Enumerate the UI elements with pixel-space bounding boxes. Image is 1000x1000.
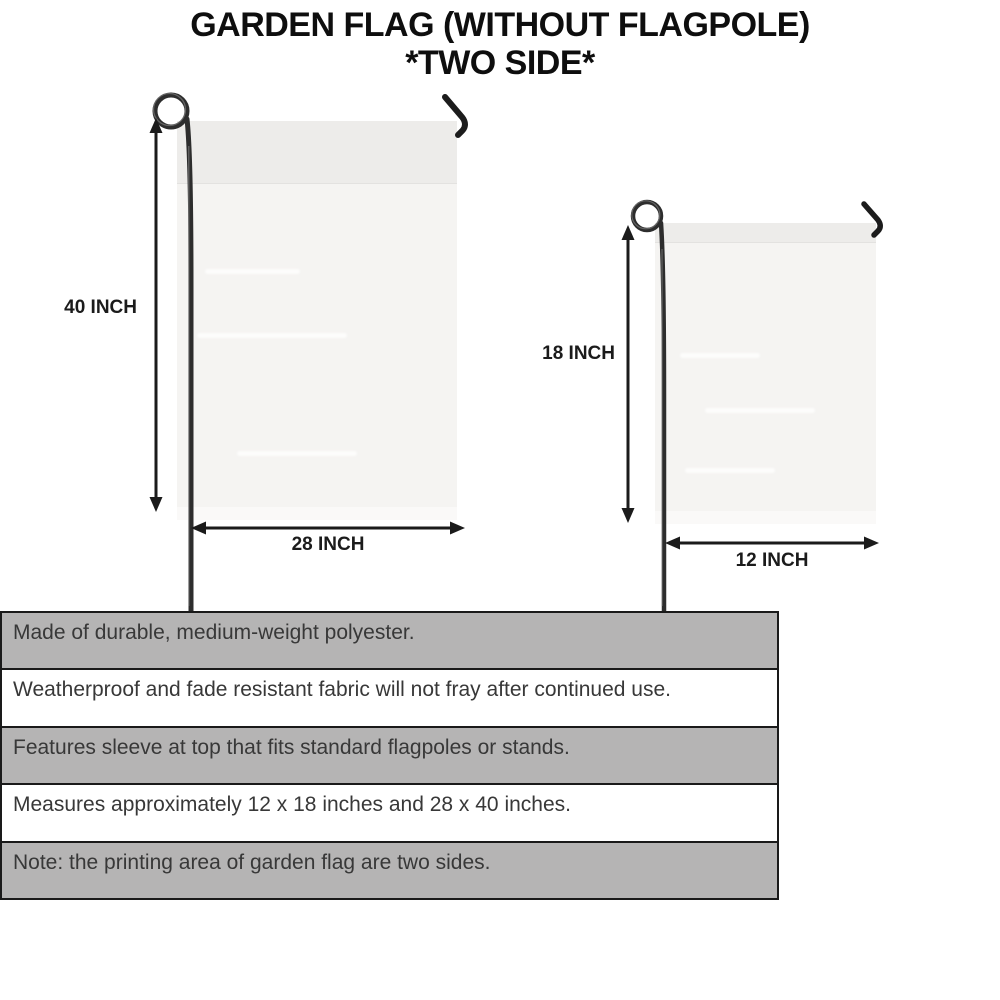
feature-text: Note: the printing area of garden flag a… xyxy=(13,851,490,874)
feature-row-sleeve: Features sleeve at top that fits standar… xyxy=(2,728,777,785)
height-label-small: 18 INCH xyxy=(505,343,615,365)
title-line-1: GARDEN FLAG (WITHOUT FLAGPOLE) xyxy=(0,6,1000,44)
fabric-crease xyxy=(237,451,357,456)
feature-row-note: Note: the printing area of garden flag a… xyxy=(2,843,777,898)
feature-row-measures: Measures approximately 12 x 18 inches an… xyxy=(2,785,777,842)
flag-sleeve-large xyxy=(177,121,457,184)
feature-text: Features sleeve at top that fits standar… xyxy=(13,736,570,759)
feature-row-material: Made of durable, medium-weight polyester… xyxy=(2,613,777,670)
flag-panel-small xyxy=(655,223,876,524)
feature-row-weatherproof: Weatherproof and fade resistant fabric w… xyxy=(2,670,777,727)
feature-text: Measures approximately 12 x 18 inches an… xyxy=(13,793,571,816)
fabric-crease xyxy=(197,333,347,338)
feature-text: Made of durable, medium-weight polyester… xyxy=(13,621,415,644)
fabric-crease xyxy=(685,468,775,473)
flag-bottom-edge xyxy=(655,511,876,524)
feature-table: Made of durable, medium-weight polyester… xyxy=(0,611,779,900)
width-label-large: 28 INCH xyxy=(190,534,466,556)
hanger-hook-small-icon xyxy=(858,198,892,242)
flag-panel-large xyxy=(177,121,457,520)
height-arrow-small-icon xyxy=(618,224,638,524)
garden-flag-infographic: GARDEN FLAG (WITHOUT FLAGPOLE) *TWO SIDE… xyxy=(0,0,1000,1000)
feature-text: Weatherproof and fade resistant fabric w… xyxy=(13,678,671,701)
height-label-large: 40 INCH xyxy=(27,297,137,319)
hanger-hook-large-icon xyxy=(438,90,476,142)
width-label-small: 12 INCH xyxy=(664,550,880,572)
height-arrow-large-icon xyxy=(146,117,166,513)
flag-sleeve-small xyxy=(655,223,876,243)
title-line-2: *TWO SIDE* xyxy=(0,44,1000,82)
fabric-crease xyxy=(705,408,815,413)
page-title: GARDEN FLAG (WITHOUT FLAGPOLE) *TWO SIDE… xyxy=(0,6,1000,82)
fabric-crease xyxy=(680,353,760,358)
fabric-crease xyxy=(205,269,300,274)
